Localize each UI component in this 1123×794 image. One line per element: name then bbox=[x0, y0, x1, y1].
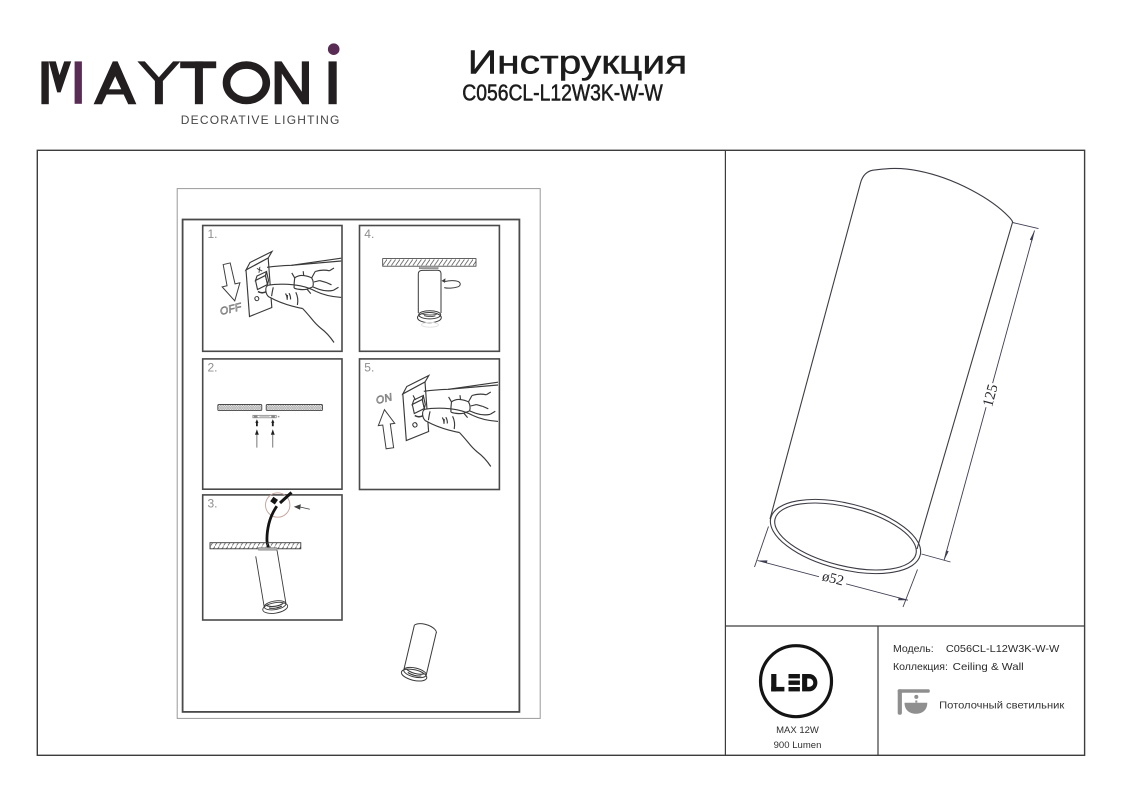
svg-text:C056CL-L12W3K-W-W: C056CL-L12W3K-W-W bbox=[462, 80, 663, 106]
svg-text:2.: 2. bbox=[208, 360, 218, 374]
svg-text:MAX 12W: MAX 12W bbox=[776, 725, 819, 736]
svg-text:Модель:: Модель: bbox=[893, 643, 934, 655]
svg-text:1.: 1. bbox=[208, 227, 218, 241]
svg-text:C056CL-L12W3K-W-W: C056CL-L12W3K-W-W bbox=[946, 643, 1059, 655]
svg-text:DECORATIVE LIGHTING: DECORATIVE LIGHTING bbox=[181, 113, 340, 127]
svg-text:ø52: ø52 bbox=[820, 568, 845, 589]
svg-text:ON: ON bbox=[375, 391, 394, 407]
svg-text:OFF: OFF bbox=[219, 301, 243, 318]
svg-text:Инструкция: Инструкция bbox=[468, 44, 687, 81]
svg-text:5.: 5. bbox=[364, 360, 374, 374]
svg-text:3.: 3. bbox=[208, 496, 218, 510]
svg-text:Коллекция:: Коллекция: bbox=[893, 661, 948, 673]
svg-text:900 Lumen: 900 Lumen bbox=[774, 740, 822, 751]
svg-text:125: 125 bbox=[980, 383, 1001, 409]
svg-text:Ceiling & Wall: Ceiling & Wall bbox=[953, 661, 1024, 673]
svg-text:4.: 4. bbox=[364, 227, 374, 241]
svg-text:Потолочный светильник: Потолочный светильник bbox=[939, 699, 1065, 711]
